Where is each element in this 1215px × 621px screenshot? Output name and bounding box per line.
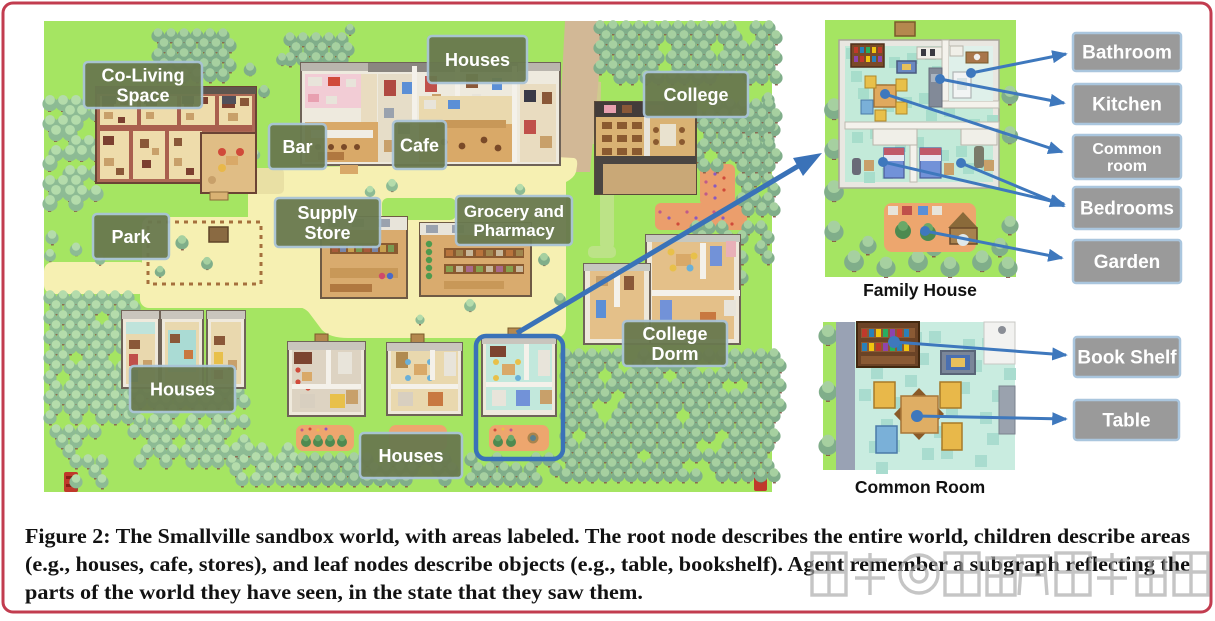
- svg-text:Dorm: Dorm: [651, 344, 698, 364]
- svg-text:Common: Common: [1092, 141, 1161, 158]
- svg-text:Supply: Supply: [297, 203, 357, 223]
- svg-text:Bar: Bar: [282, 137, 312, 157]
- svg-text:College: College: [663, 85, 728, 105]
- svg-text:Bedrooms: Bedrooms: [1080, 199, 1174, 220]
- svg-text:Houses: Houses: [150, 380, 215, 400]
- svg-text:Store: Store: [304, 223, 350, 243]
- svg-text:Grocery and: Grocery and: [464, 202, 564, 221]
- svg-text:Space: Space: [116, 86, 169, 106]
- svg-text:Bathroom: Bathroom: [1082, 43, 1172, 64]
- svg-text:Garden: Garden: [1094, 252, 1161, 273]
- svg-text:Cafe: Cafe: [400, 136, 439, 156]
- svg-text:Kitchen: Kitchen: [1092, 95, 1162, 116]
- svg-text:parts of the world they have s: parts of the world they have seen, in th…: [25, 580, 643, 604]
- svg-text:Houses: Houses: [445, 50, 510, 70]
- svg-text:Family House: Family House: [863, 280, 977, 300]
- svg-text:College: College: [642, 324, 707, 344]
- svg-text:Houses: Houses: [378, 446, 443, 466]
- svg-text:Co-Living: Co-Living: [102, 66, 185, 86]
- svg-text:Pharmacy: Pharmacy: [473, 221, 555, 240]
- svg-text:Book Shelf: Book Shelf: [1077, 348, 1177, 369]
- svg-text:Table: Table: [1102, 411, 1150, 432]
- svg-text:room: room: [1107, 158, 1147, 175]
- svg-text:Figure 2: The Smallville sandb: Figure 2: The Smallville sandbox world, …: [25, 524, 1190, 548]
- svg-text:Park: Park: [111, 227, 151, 247]
- svg-text:Common Room: Common Room: [855, 477, 985, 497]
